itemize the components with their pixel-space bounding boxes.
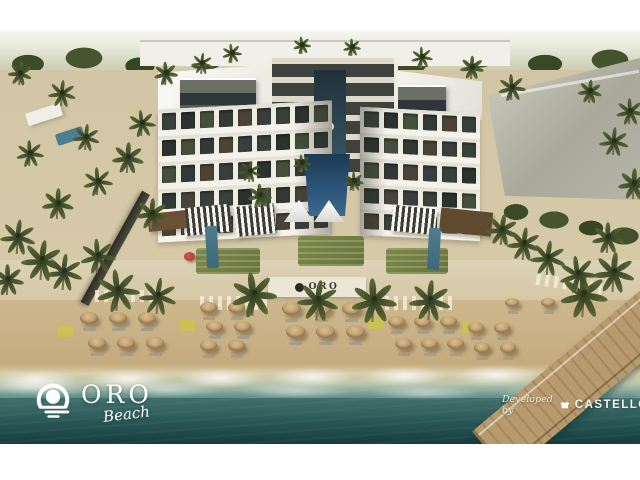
resort-rendering: ORO ORO Beach Developed by [0,0,640,480]
lounge-chair [120,353,133,356]
beach-entrance-sign: ORO [268,277,366,297]
window [219,136,233,153]
beach-mat [58,326,73,337]
beach-umbrella [117,337,135,349]
window [295,132,309,149]
lounge-chair [231,317,243,320]
beach-umbrella [312,302,331,315]
red-umbrella [184,252,195,261]
beach-umbrella [494,322,510,333]
lounge-chair [83,328,96,331]
lounge-chair [237,336,249,339]
window [462,116,477,132]
window [364,137,379,153]
lounge-chair [477,357,488,360]
beach-umbrella [468,322,484,333]
window [162,139,176,156]
window [423,114,438,130]
developer-name: CASTELLO [575,399,640,411]
window [403,139,418,155]
castle-icon [560,399,570,411]
lounge-chair [209,336,221,339]
beach-mat [368,318,383,329]
lounge-chair [443,331,455,334]
lounge-chair [503,357,514,360]
aerial-photo: ORO ORO Beach Developed by [0,30,640,444]
lounge-chair [450,353,462,356]
window [384,163,399,179]
lounge-chair [497,337,508,340]
window [276,107,290,124]
oro-sign-icon [295,283,304,292]
window [384,112,399,128]
developed-by-label: Developed by [502,394,555,416]
window [364,111,379,127]
lounge-chair [315,319,328,322]
lounge-chair [91,353,104,356]
beach-umbrella [286,325,305,338]
window [238,188,252,205]
window [238,135,252,152]
hedge [496,186,640,250]
beach-umbrella [346,325,365,338]
window [384,189,399,205]
beach-umbrella [282,302,301,315]
sign-text: ORO [309,282,340,292]
window [162,192,176,209]
window [200,111,214,128]
lounge-chair [231,355,243,358]
lounge-chair [203,317,215,320]
lounge-chair [349,342,362,345]
window [181,112,195,129]
developer-credit: Developed by CASTELLO [502,394,640,416]
beach-umbrella [146,337,164,349]
window [238,162,252,179]
window [314,131,328,148]
window [295,106,309,123]
window [462,167,477,183]
lounge-chair [203,355,215,358]
window [257,134,271,151]
window [314,105,328,122]
beach-umbrella [474,342,490,353]
plunge-pool [205,226,219,269]
window [442,115,457,131]
window [403,164,418,180]
beach-umbrella [500,342,516,353]
window [403,113,418,129]
beach-umbrella [80,312,98,324]
window [200,137,214,154]
lounge-chair [391,331,403,334]
window [423,165,438,181]
lounge-chair [508,311,518,314]
crosswalk [385,296,453,310]
window [423,140,438,156]
lounge-chair [424,353,436,356]
window [219,163,233,180]
lounge-chair [141,328,154,331]
lounge-chair [398,353,410,356]
sun-over-waves-icon [34,382,72,420]
window [364,213,379,229]
window [462,193,477,209]
pergola [234,203,277,237]
crosswalk [95,290,153,302]
window [276,160,290,177]
lounge-chair [471,337,482,340]
lounge-chair [345,319,358,322]
window [403,190,418,206]
beach-umbrella [138,312,156,324]
beach-umbrella [88,337,106,349]
oro-beach-logo: ORO Beach [34,382,153,423]
window [200,164,214,181]
window [442,141,457,157]
beach-umbrella [342,302,361,315]
plunge-pool [427,228,441,271]
lounge-chair [319,342,332,345]
window [364,188,379,204]
event-canopy [284,200,344,222]
window [257,108,271,125]
window [257,187,271,204]
window [181,191,195,208]
beach-umbrella [316,325,335,338]
lounge-chair [417,331,429,334]
window [219,110,233,127]
window [442,166,457,182]
lounge-chair [289,342,302,345]
window [364,162,379,178]
lounge-chair [285,319,298,322]
lounge-chair [149,353,162,356]
window [384,138,399,154]
lounge-chair [112,328,125,331]
window [181,165,195,182]
window [238,109,252,126]
lawn [298,236,364,266]
window [162,166,176,183]
beach-mat [180,320,195,331]
window [276,133,290,150]
beach-umbrella [109,312,127,324]
window [181,138,195,155]
window [257,161,271,178]
window [442,192,457,208]
lounge-chair [544,311,554,314]
window [162,113,176,130]
window [423,191,438,207]
window [462,142,477,158]
